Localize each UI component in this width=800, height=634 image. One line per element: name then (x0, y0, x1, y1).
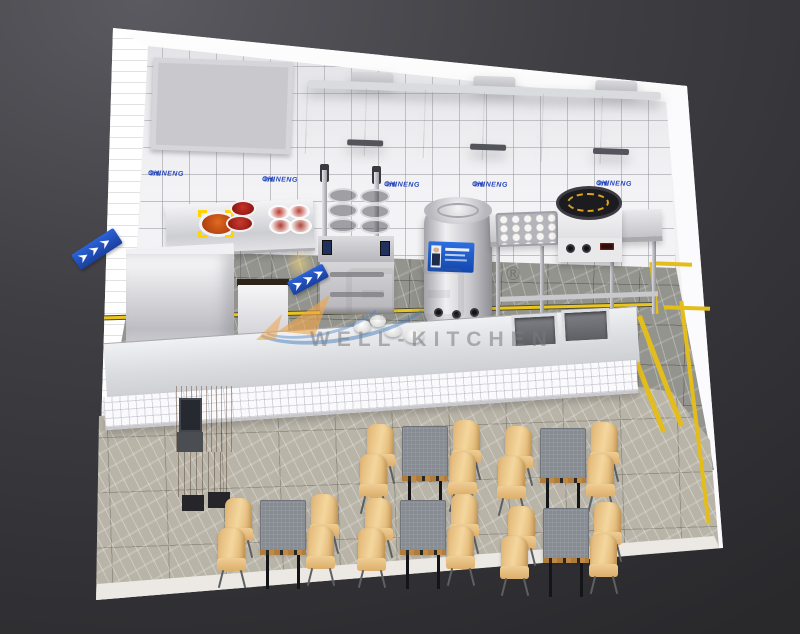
chair-leg (527, 468, 533, 486)
registered-trademark: ® (506, 264, 520, 286)
table-top (260, 500, 306, 552)
dining-chair (446, 526, 476, 586)
chair-leg (612, 576, 618, 594)
noodle-basket (360, 219, 390, 234)
drawer-handle (330, 272, 384, 277)
food-bowl (270, 207, 288, 218)
cashier-shelf (177, 432, 203, 452)
soup-kettle-label (427, 241, 474, 273)
dining-table-group (543, 508, 663, 628)
induction-knob (582, 244, 591, 253)
noodle-basket (328, 203, 358, 218)
table-leg (406, 555, 409, 589)
table-leg (266, 555, 269, 589)
table-top (540, 428, 586, 480)
kitchen-3d-render: CHINENG驰能CHINENG驰能CHINENG驰能CHINENG驰能CHIN… (0, 0, 800, 634)
food-bowl (271, 220, 290, 232)
food-plate-red (228, 217, 252, 230)
noodle-basket (360, 204, 390, 219)
drawer-handle (330, 292, 384, 297)
chair-leg (380, 570, 386, 588)
dining-chair (500, 536, 530, 596)
dining-table (540, 428, 586, 486)
chair-leg (329, 568, 335, 586)
sink-basin (511, 313, 559, 349)
chair-leg (530, 548, 536, 566)
table-leg (549, 563, 552, 597)
dining-table (402, 426, 448, 484)
steamer-tray-buns (495, 211, 558, 247)
label-text-line (445, 259, 467, 262)
induction-display (600, 243, 614, 250)
table-leg (540, 246, 544, 318)
chair-leg (469, 568, 475, 586)
table-top (543, 508, 589, 560)
chair-leg (307, 568, 313, 586)
food-bowl (290, 206, 308, 217)
table-leg (652, 236, 656, 314)
pos-monitor (179, 398, 202, 432)
table-leg (297, 555, 300, 589)
sign-text-cjk: 驰能 (264, 176, 275, 183)
exhaust-hood (305, 74, 662, 168)
chair-leg (590, 576, 596, 594)
kettle-knob (470, 308, 479, 317)
noodle-basket (328, 188, 358, 203)
sign-text-cjk: 驰能 (386, 181, 397, 188)
table-top (402, 426, 448, 478)
white-container (370, 315, 386, 327)
dining-chair (306, 526, 336, 586)
chair-leg (447, 568, 453, 586)
food-bowl (291, 220, 310, 232)
chair-leg (247, 540, 253, 558)
cashier-base (182, 495, 204, 511)
hood-slot (470, 144, 506, 151)
food-plate-red (232, 202, 254, 215)
dining-chair (217, 528, 247, 588)
noodle-cooker-cabinet (320, 262, 394, 314)
white-container (354, 320, 371, 333)
hood-slot (347, 139, 383, 146)
chair-leg (387, 540, 393, 558)
chair-leg (358, 570, 364, 588)
noodle-cooker-screen (322, 240, 332, 255)
soup-kettle-lid-ring (437, 203, 479, 218)
table-leg (580, 563, 583, 597)
label-text-line (445, 248, 469, 252)
sink-basin (561, 308, 611, 344)
sign-text-cjk: 驰能 (474, 181, 485, 188)
induction-wok-ring (567, 193, 609, 212)
cashier-counter-front (178, 452, 232, 497)
dining-table (260, 500, 306, 558)
white-container (384, 324, 402, 337)
noodle-cooker-rail (322, 170, 327, 242)
sign-text-cjk: 驰能 (150, 170, 161, 177)
noodle-basket (328, 218, 358, 233)
label-suit (432, 253, 440, 265)
induction-knob (566, 244, 575, 253)
dining-chair (357, 528, 387, 588)
kettle-knob (434, 308, 443, 317)
chair-leg (501, 578, 507, 596)
table-top (400, 500, 446, 552)
noodle-cooker-screen (380, 241, 390, 256)
white-container (404, 329, 424, 343)
label-text-line (445, 254, 465, 257)
chair-leg (240, 570, 246, 588)
table-leg (437, 555, 440, 589)
chair-leg (218, 570, 224, 588)
dining-table (543, 508, 589, 566)
hood-slot (593, 148, 629, 155)
chair-leg (389, 466, 395, 484)
noodle-basket (360, 189, 390, 204)
dining-table (400, 500, 446, 558)
wall-window (150, 58, 293, 155)
dining-chair (589, 534, 619, 594)
chair-leg (523, 578, 529, 596)
